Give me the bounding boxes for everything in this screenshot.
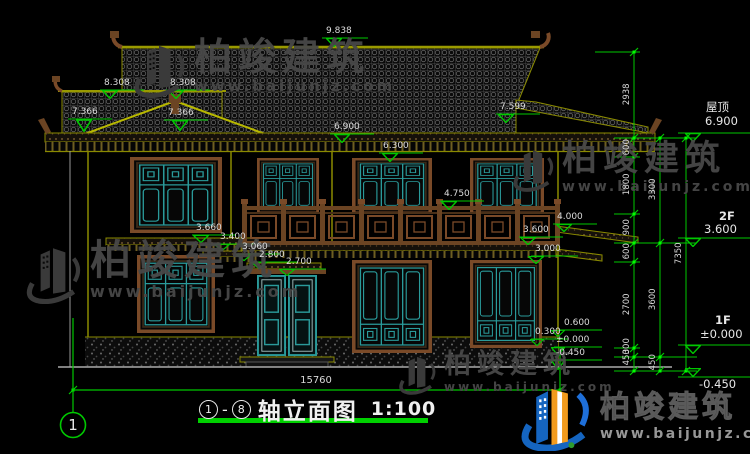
watermark-brand: 柏竣建筑 — [90, 240, 301, 281]
elevation-mark-label: 3.000 — [535, 245, 561, 254]
elevation-mark-label: -0.450 — [556, 349, 585, 358]
title-scale: 1:100 — [371, 398, 436, 420]
level-mark-icon — [686, 346, 701, 354]
elevation-mark-label: 8.308 — [170, 79, 196, 88]
elevation-mark-label: 2.800 — [259, 251, 285, 260]
axis-bubble-label: 1 — [66, 416, 80, 434]
chain-dim-label: 2700 — [623, 286, 632, 322]
level-2f-label: 2F — [719, 211, 735, 223]
title-axis-from: 1 — [199, 400, 218, 419]
chain-dim-label: 450 — [649, 344, 658, 380]
brand-logo-icon — [516, 383, 594, 451]
drawing-title: 1 - 8 轴立面图 1:100 — [199, 392, 436, 426]
watermark-logo-icon — [510, 142, 556, 194]
elevation-mark-label: 7.366 — [168, 109, 194, 118]
chain-dim-label: 600 — [623, 129, 632, 165]
right-dimension-chain — [595, 52, 697, 371]
level-2f-value: 3.600 — [704, 224, 737, 236]
level-1f-value: ±0.000 — [700, 329, 743, 341]
elevation-mark-label: 8.308 — [104, 79, 130, 88]
watermark-brand: 柏竣建筑 — [194, 38, 395, 76]
level-1f-label: 1F — [715, 315, 731, 327]
watermark-brand: 柏竣建筑 — [444, 351, 615, 378]
level-roof-label: 屋顶 — [706, 102, 729, 114]
elevation-mark-label: 3.400 — [220, 233, 246, 242]
elevation-mark-label: 2.700 — [286, 258, 312, 267]
elevation-mark-label: 4.000 — [557, 213, 583, 222]
elevation-mark-label: 9.838 — [326, 27, 352, 36]
level-roof-value: 6.900 — [705, 116, 738, 128]
brand-logo-block: 柏竣建筑 www.baijunjz.com — [516, 383, 750, 451]
watermark: 柏竣建筑 www.baijunjz.com — [130, 38, 395, 98]
elevation-mark-label: 3.600 — [523, 226, 549, 235]
title-dash: - — [222, 400, 228, 419]
chain-dim-label: 1800 — [623, 166, 632, 202]
lattice-window-1f-b — [472, 262, 541, 347]
chain-dim-label: 450 — [623, 339, 632, 375]
chain-dim-label: 7350 — [675, 235, 684, 271]
watermark-logo-icon — [22, 240, 84, 304]
elevation-mark-label: 7.599 — [500, 103, 526, 112]
brand-logo-text: 柏竣建筑 — [600, 393, 750, 423]
door-step — [240, 357, 334, 362]
elevation-mark-label: 4.750 — [444, 190, 470, 199]
lattice-window-2f-b — [354, 159, 430, 213]
ridge-end-right — [540, 33, 549, 47]
brand-logo-url: www.baijunjz.com — [600, 427, 750, 441]
eave-upturn-right — [649, 118, 662, 134]
chain-dim-label: 3600 — [649, 281, 658, 317]
lattice-window-2f-left — [132, 159, 220, 232]
overall-width-dim: 15760 — [286, 375, 346, 386]
elevation-mark-label: 0.600 — [564, 319, 590, 328]
elevation-mark-label: 3.660 — [196, 224, 222, 233]
chain-dim-label: 600 — [623, 233, 632, 269]
chain-dim-label: 2938 — [623, 76, 632, 112]
eave-upturn-left — [38, 118, 51, 134]
elevation-mark-label: 6.300 — [383, 142, 409, 151]
elevation-mark-label: ±0.000 — [556, 336, 589, 345]
elevation-mark-label: 7.366 — [72, 108, 98, 117]
chain-dim-label: 3300 — [649, 171, 658, 207]
title-name: 轴立面图 — [258, 392, 358, 426]
lattice-window-1f-a — [354, 262, 430, 352]
lattice-window-2f-a — [258, 159, 317, 213]
title-axis-to: 8 — [232, 400, 251, 419]
elevation-mark-label: 6.900 — [334, 123, 360, 132]
watermark-logo-icon — [396, 351, 438, 395]
cad-elevation-screenshot: 柏竣建筑 www.baijunjz.com 柏竣建筑 www.baijunjz.… — [0, 0, 750, 454]
watermark-url: www.baijunjz.com — [90, 284, 301, 300]
watermark-url: www.baijunjz.com — [194, 79, 395, 94]
watermark-logo-icon — [130, 38, 188, 98]
